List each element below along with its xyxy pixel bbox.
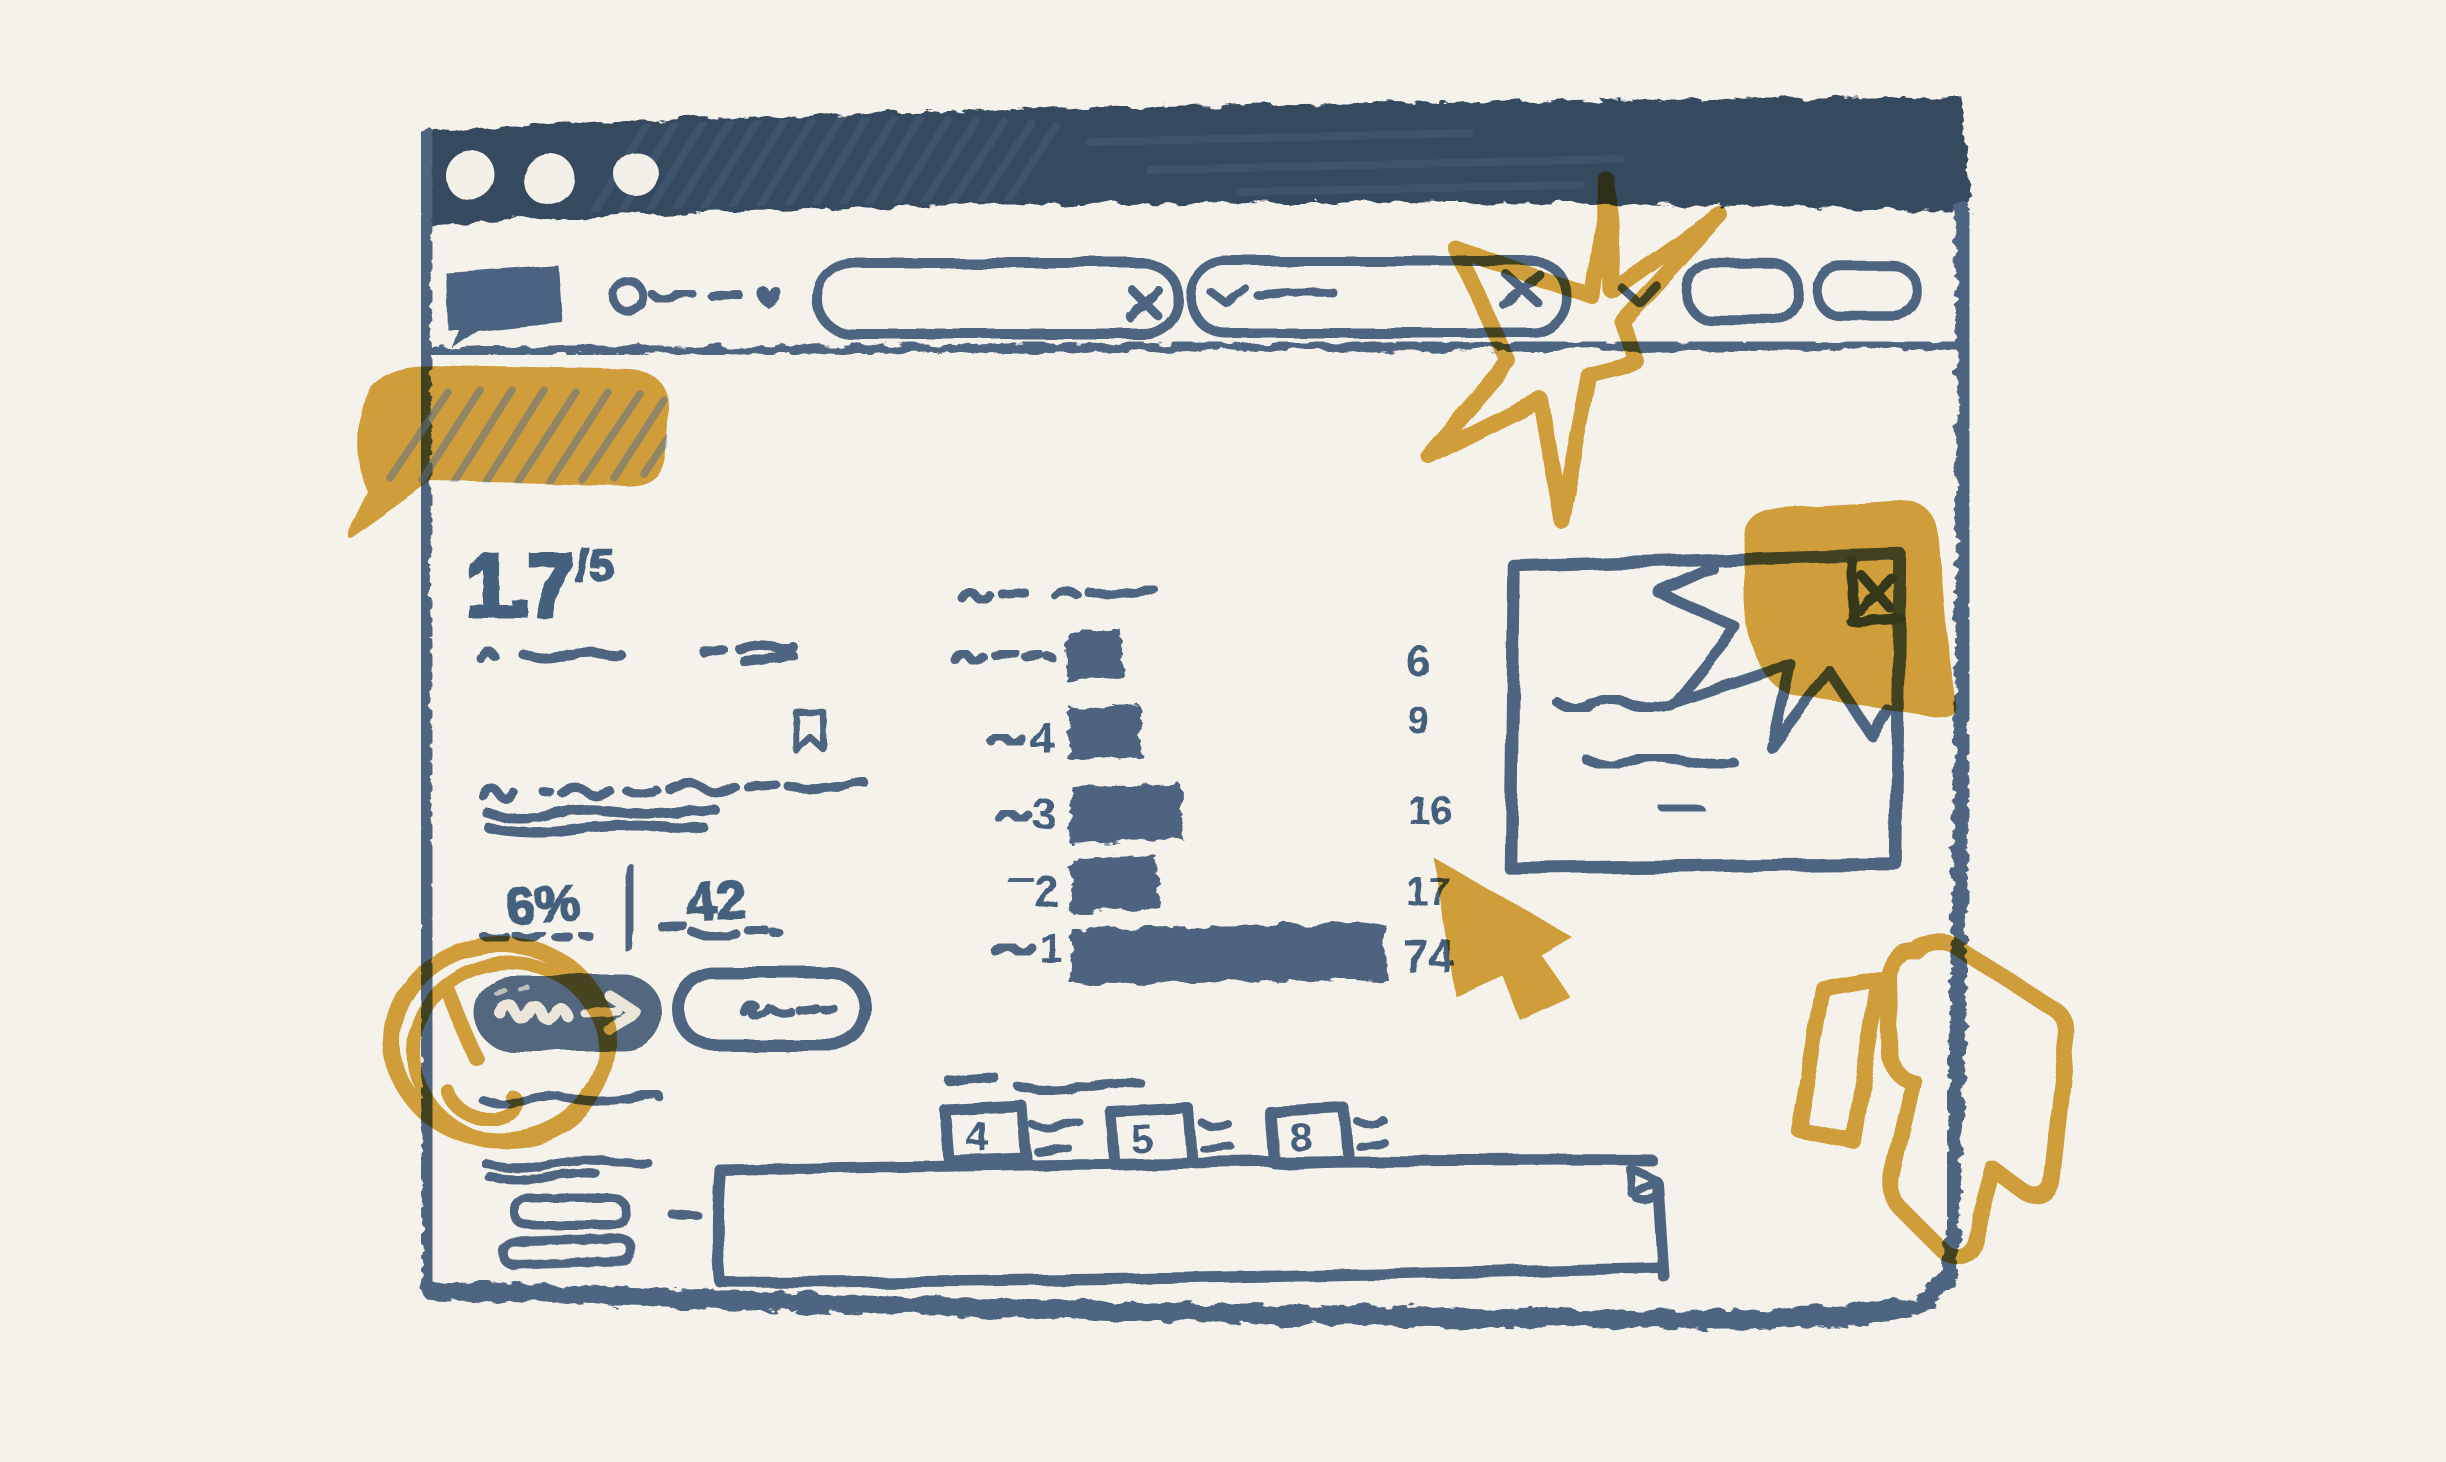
svg-text:/5: /5	[576, 541, 614, 590]
svg-text:2: 2	[1034, 867, 1058, 916]
svg-text:1.7: 1.7	[466, 536, 571, 635]
svg-text:16: 16	[1408, 789, 1453, 833]
svg-text:5: 5	[1131, 1118, 1153, 1162]
svg-text:6%: 6%	[504, 873, 582, 935]
svg-text:6: 6	[1406, 637, 1430, 686]
svg-text:4: 4	[1030, 714, 1055, 763]
svg-text:1: 1	[1040, 925, 1063, 972]
svg-text:4: 4	[966, 1115, 989, 1159]
svg-text:42: 42	[685, 870, 748, 933]
svg-text:8: 8	[1290, 1116, 1312, 1160]
svg-text:9: 9	[1408, 700, 1429, 742]
svg-text:3: 3	[1032, 790, 1056, 839]
